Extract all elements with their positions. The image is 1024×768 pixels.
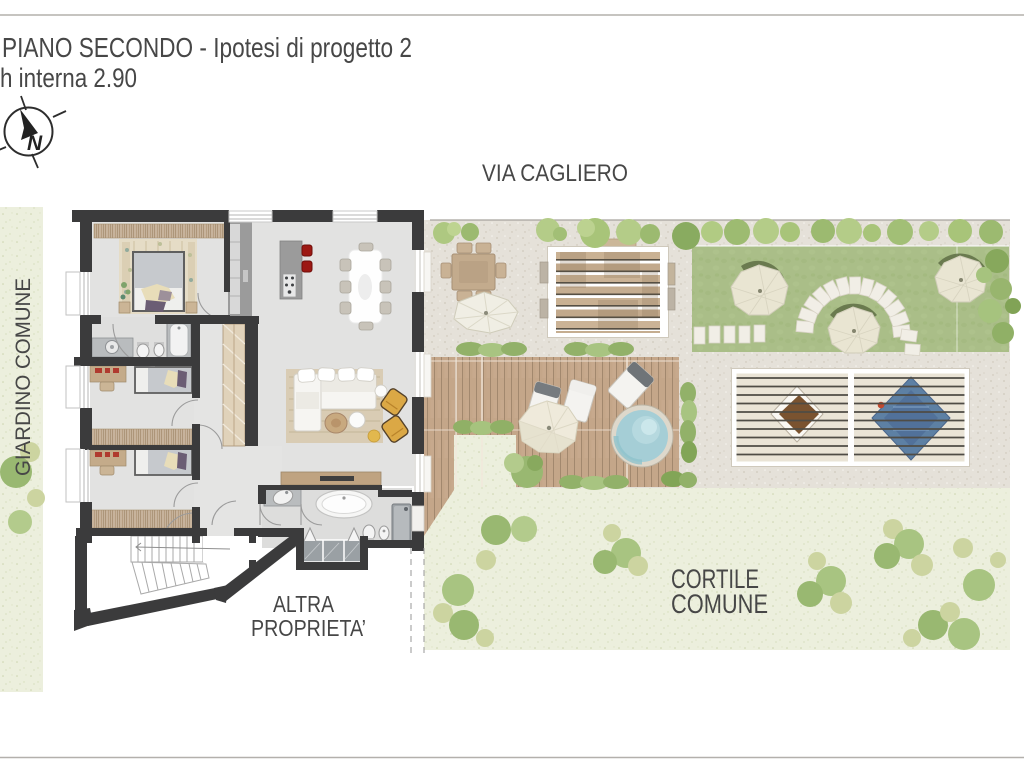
svg-text:GIARDINO COMUNE: GIARDINO COMUNE <box>12 278 35 476</box>
svg-text:COMUNE: COMUNE <box>671 589 768 619</box>
svg-text:ALTRA: ALTRA <box>273 591 335 617</box>
svg-text:PIANO SECONDO - Ipotesi di pro: PIANO SECONDO - Ipotesi di progetto 2 <box>2 32 412 63</box>
svg-text:N: N <box>27 132 43 155</box>
svg-text:PROPRIETA’: PROPRIETA’ <box>251 615 366 641</box>
svg-text:h interna 2.90: h interna 2.90 <box>0 63 137 93</box>
svg-text:VIA CAGLIERO: VIA CAGLIERO <box>482 160 628 187</box>
